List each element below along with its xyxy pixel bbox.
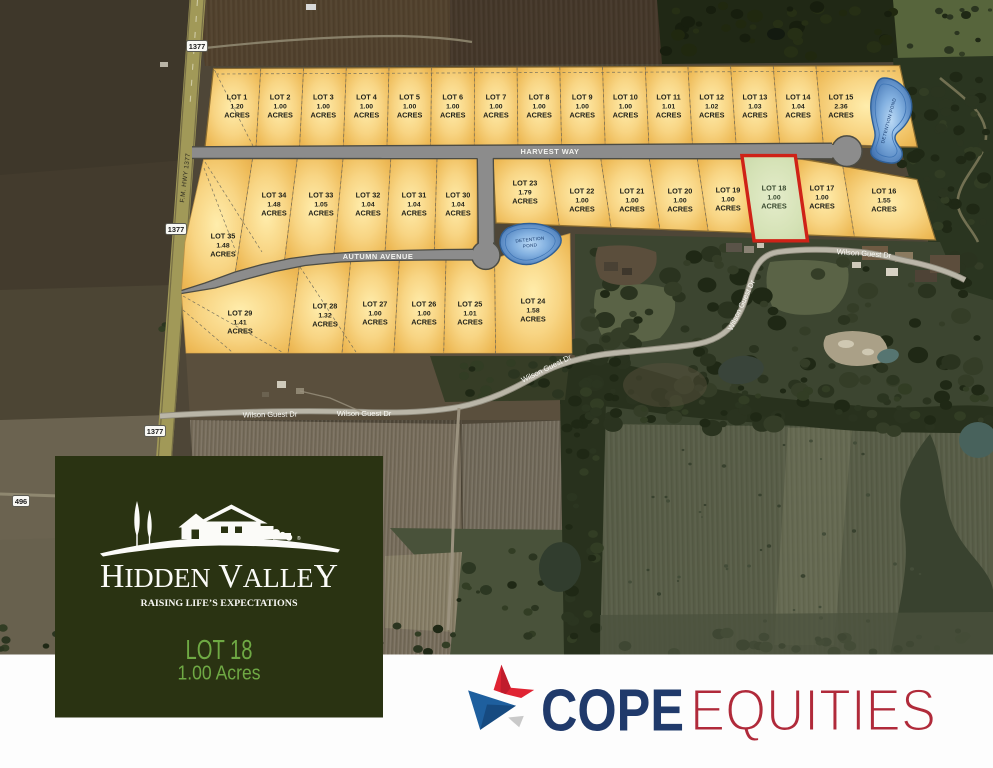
- svg-text:LOT 17: LOT 17: [810, 184, 835, 193]
- svg-text:LOT 5: LOT 5: [399, 93, 420, 102]
- svg-text:LOT 28: LOT 28: [313, 302, 338, 311]
- svg-text:1.00: 1.00: [489, 104, 502, 111]
- svg-text:ACRES: ACRES: [483, 111, 509, 120]
- svg-text:1.05: 1.05: [314, 202, 327, 209]
- svg-text:ACRES: ACRES: [224, 111, 250, 120]
- svg-text:1.00: 1.00: [625, 198, 638, 205]
- svg-text:LOT 24: LOT 24: [521, 297, 547, 306]
- svg-text:LOT 29: LOT 29: [228, 309, 253, 318]
- svg-text:ACRES: ACRES: [411, 318, 437, 327]
- svg-text:ACRES: ACRES: [569, 111, 595, 120]
- svg-text:LOT 18: LOT 18: [186, 634, 253, 665]
- svg-text:LOT 11: LOT 11: [656, 93, 680, 102]
- svg-text:LOT 7: LOT 7: [486, 93, 507, 102]
- svg-text:1.00: 1.00: [274, 104, 287, 111]
- svg-text:LOT 1: LOT 1: [227, 93, 248, 102]
- svg-text:ACRES: ACRES: [227, 327, 253, 336]
- svg-text:ACRES: ACRES: [210, 250, 236, 259]
- svg-text:1.00: 1.00: [575, 198, 588, 205]
- svg-text:LOT 20: LOT 20: [668, 187, 693, 196]
- svg-text:LOT 21: LOT 21: [620, 187, 645, 196]
- svg-text:1.00: 1.00: [619, 104, 632, 111]
- svg-text:AUTUMN AVENUE: AUTUMN AVENUE: [343, 252, 414, 261]
- svg-text:LOT 10: LOT 10: [613, 93, 638, 102]
- svg-text:ACRES: ACRES: [312, 320, 338, 329]
- svg-text:LOT 18: LOT 18: [762, 184, 787, 193]
- svg-text:1.00: 1.00: [317, 104, 330, 111]
- svg-text:ACRES: ACRES: [742, 111, 768, 120]
- svg-text:LOT 30: LOT 30: [446, 191, 471, 200]
- svg-text:1.03: 1.03: [748, 104, 761, 111]
- svg-text:LOT 16: LOT 16: [872, 187, 897, 196]
- svg-text:1.00: 1.00: [532, 104, 545, 111]
- svg-text:1.79: 1.79: [518, 190, 531, 197]
- svg-text:1.48: 1.48: [267, 202, 280, 209]
- svg-text:ACRES: ACRES: [457, 318, 483, 327]
- svg-text:LOT 26: LOT 26: [412, 300, 437, 309]
- svg-text:1.55: 1.55: [877, 198, 890, 205]
- svg-text:1.00: 1.00: [417, 311, 430, 318]
- svg-text:1.58: 1.58: [526, 308, 539, 315]
- svg-text:ACRES: ACRES: [699, 111, 725, 120]
- svg-text:LOT 4: LOT 4: [356, 93, 378, 102]
- svg-text:ACRES: ACRES: [308, 209, 334, 218]
- svg-text:ACRES: ACRES: [311, 111, 337, 120]
- svg-text:LOT 9: LOT 9: [572, 93, 593, 102]
- svg-text:HIDDEN VALLEY: HIDDEN VALLEY: [100, 558, 338, 595]
- svg-text:1.00: 1.00: [446, 104, 459, 111]
- svg-text:ACRES: ACRES: [785, 111, 811, 120]
- svg-text:LOT 22: LOT 22: [570, 187, 595, 196]
- svg-text:1.20: 1.20: [230, 104, 243, 111]
- svg-text:1.00: 1.00: [767, 195, 780, 202]
- svg-text:RAISING LIFE’S EXPECTATIONS: RAISING LIFE’S EXPECTATIONS: [141, 598, 298, 608]
- svg-text:1.00 Acres: 1.00 Acres: [178, 663, 261, 685]
- svg-text:LOT 2: LOT 2: [270, 93, 291, 102]
- svg-text:COPE: COPE: [541, 678, 684, 744]
- svg-text:EQUITIES: EQUITIES: [690, 678, 936, 744]
- svg-text:1.41: 1.41: [233, 320, 246, 327]
- svg-text:LOT 25: LOT 25: [458, 300, 483, 309]
- svg-text:1.01: 1.01: [662, 104, 675, 111]
- svg-text:LOT 35: LOT 35: [211, 232, 236, 241]
- svg-text:ACRES: ACRES: [397, 111, 423, 120]
- svg-text:ACRES: ACRES: [445, 209, 471, 218]
- svg-text:ACRES: ACRES: [613, 111, 639, 120]
- svg-text:LOT 33: LOT 33: [309, 191, 334, 200]
- svg-text:1.48: 1.48: [216, 243, 229, 250]
- svg-text:1.00: 1.00: [815, 195, 828, 202]
- svg-text:1377: 1377: [168, 225, 184, 234]
- svg-text:ACRES: ACRES: [871, 205, 897, 214]
- svg-text:ACRES: ACRES: [667, 205, 693, 214]
- svg-text:1.00: 1.00: [360, 104, 373, 111]
- svg-text:ACRES: ACRES: [619, 205, 645, 214]
- svg-text:1.32: 1.32: [318, 313, 331, 320]
- svg-text:1.01: 1.01: [463, 311, 476, 318]
- svg-text:ACRES: ACRES: [355, 209, 381, 218]
- svg-text:1.00: 1.00: [368, 311, 381, 318]
- svg-text:1.00: 1.00: [576, 104, 589, 111]
- svg-text:ACRES: ACRES: [715, 204, 741, 213]
- svg-text:1.02: 1.02: [705, 104, 718, 111]
- svg-text:1.00: 1.00: [721, 197, 734, 204]
- svg-text:2.36: 2.36: [834, 104, 847, 111]
- svg-text:ACRES: ACRES: [362, 318, 388, 327]
- svg-text:LOT 13: LOT 13: [743, 93, 768, 102]
- svg-text:LOT 32: LOT 32: [356, 191, 381, 200]
- svg-text:ACRES: ACRES: [761, 202, 787, 211]
- svg-text:1.04: 1.04: [451, 202, 464, 209]
- svg-text:1.04: 1.04: [407, 202, 420, 209]
- svg-text:ACRES: ACRES: [656, 111, 682, 120]
- svg-text:1377: 1377: [189, 42, 205, 51]
- svg-text:ACRES: ACRES: [440, 111, 466, 120]
- svg-text:ACRES: ACRES: [569, 205, 595, 214]
- svg-text:ACRES: ACRES: [261, 209, 287, 218]
- svg-text:LOT 12: LOT 12: [699, 93, 724, 102]
- svg-text:ACRES: ACRES: [401, 209, 427, 218]
- svg-text:1.04: 1.04: [361, 202, 374, 209]
- svg-text:ACRES: ACRES: [354, 111, 380, 120]
- svg-text:LOT 6: LOT 6: [442, 93, 463, 102]
- svg-text:ACRES: ACRES: [520, 315, 546, 324]
- svg-text:Wilson Guest Dr: Wilson Guest Dr: [243, 410, 298, 420]
- svg-text:LOT 27: LOT 27: [363, 300, 388, 309]
- svg-text:LOT 19: LOT 19: [716, 186, 741, 195]
- svg-text:HARVEST WAY: HARVEST WAY: [521, 147, 580, 156]
- svg-text:ACRES: ACRES: [809, 202, 835, 211]
- svg-text:1377: 1377: [147, 427, 163, 436]
- svg-text:LOT 34: LOT 34: [262, 191, 288, 200]
- svg-text:ACRES: ACRES: [828, 111, 854, 120]
- svg-text:LOT 31: LOT 31: [402, 191, 427, 200]
- svg-text:LOT 23: LOT 23: [513, 179, 538, 188]
- svg-text:Wilson Guest Dr: Wilson Guest Dr: [337, 409, 392, 418]
- svg-text:LOT 8: LOT 8: [529, 93, 550, 102]
- svg-text:®: ®: [297, 535, 301, 542]
- svg-text:ACRES: ACRES: [267, 111, 293, 120]
- svg-text:ACRES: ACRES: [512, 197, 538, 206]
- svg-text:1.00: 1.00: [673, 198, 686, 205]
- svg-text:LOT 14: LOT 14: [786, 93, 812, 102]
- svg-text:LOT 15: LOT 15: [829, 93, 854, 102]
- svg-text:1.04: 1.04: [791, 104, 804, 111]
- svg-text:496: 496: [15, 497, 27, 506]
- svg-text:ACRES: ACRES: [526, 111, 552, 120]
- svg-text:1.00: 1.00: [403, 104, 416, 111]
- svg-text:LOT 3: LOT 3: [313, 93, 334, 102]
